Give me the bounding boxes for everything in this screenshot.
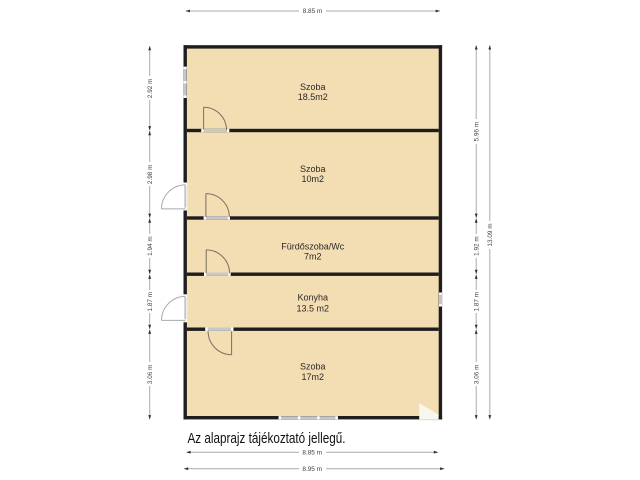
svg-text:1.87 m: 1.87 m	[473, 292, 480, 312]
svg-text:7m2: 7m2	[304, 252, 322, 262]
svg-text:1.92 m: 1.92 m	[473, 236, 480, 256]
svg-text:1.94 m: 1.94 m	[147, 236, 154, 256]
svg-text:2.98 m: 2.98 m	[147, 165, 154, 185]
svg-text:13.09 m: 13.09 m	[487, 223, 494, 246]
svg-text:8.85 m: 8.85 m	[303, 8, 323, 15]
svg-text:5.96 m: 5.96 m	[473, 122, 480, 142]
svg-text:Szoba: Szoba	[300, 82, 326, 92]
svg-text:Konyha: Konyha	[298, 293, 329, 303]
svg-text:17m2: 17m2	[302, 372, 325, 382]
svg-text:3.06 m: 3.06 m	[147, 365, 154, 385]
svg-text:Fürdőszoba/Wc: Fürdőszoba/Wc	[281, 242, 345, 252]
svg-text:13.5 m2: 13.5 m2	[297, 304, 330, 314]
svg-text:8.85 m: 8.85 m	[302, 449, 322, 456]
svg-text:Szoba: Szoba	[300, 362, 326, 372]
svg-text:Az alaprajz tájékoztató jelleg: Az alaprajz tájékoztató jellegű.	[188, 430, 346, 447]
svg-text:10m2: 10m2	[302, 174, 325, 184]
svg-text:8.95 m: 8.95 m	[302, 466, 322, 473]
svg-text:18.5m2: 18.5m2	[298, 92, 328, 102]
svg-text:3.06 m: 3.06 m	[473, 365, 480, 385]
svg-text:1.87 m: 1.87 m	[147, 292, 154, 312]
svg-text:Szoba: Szoba	[300, 164, 326, 174]
svg-text:2.92 m: 2.92 m	[147, 79, 154, 99]
